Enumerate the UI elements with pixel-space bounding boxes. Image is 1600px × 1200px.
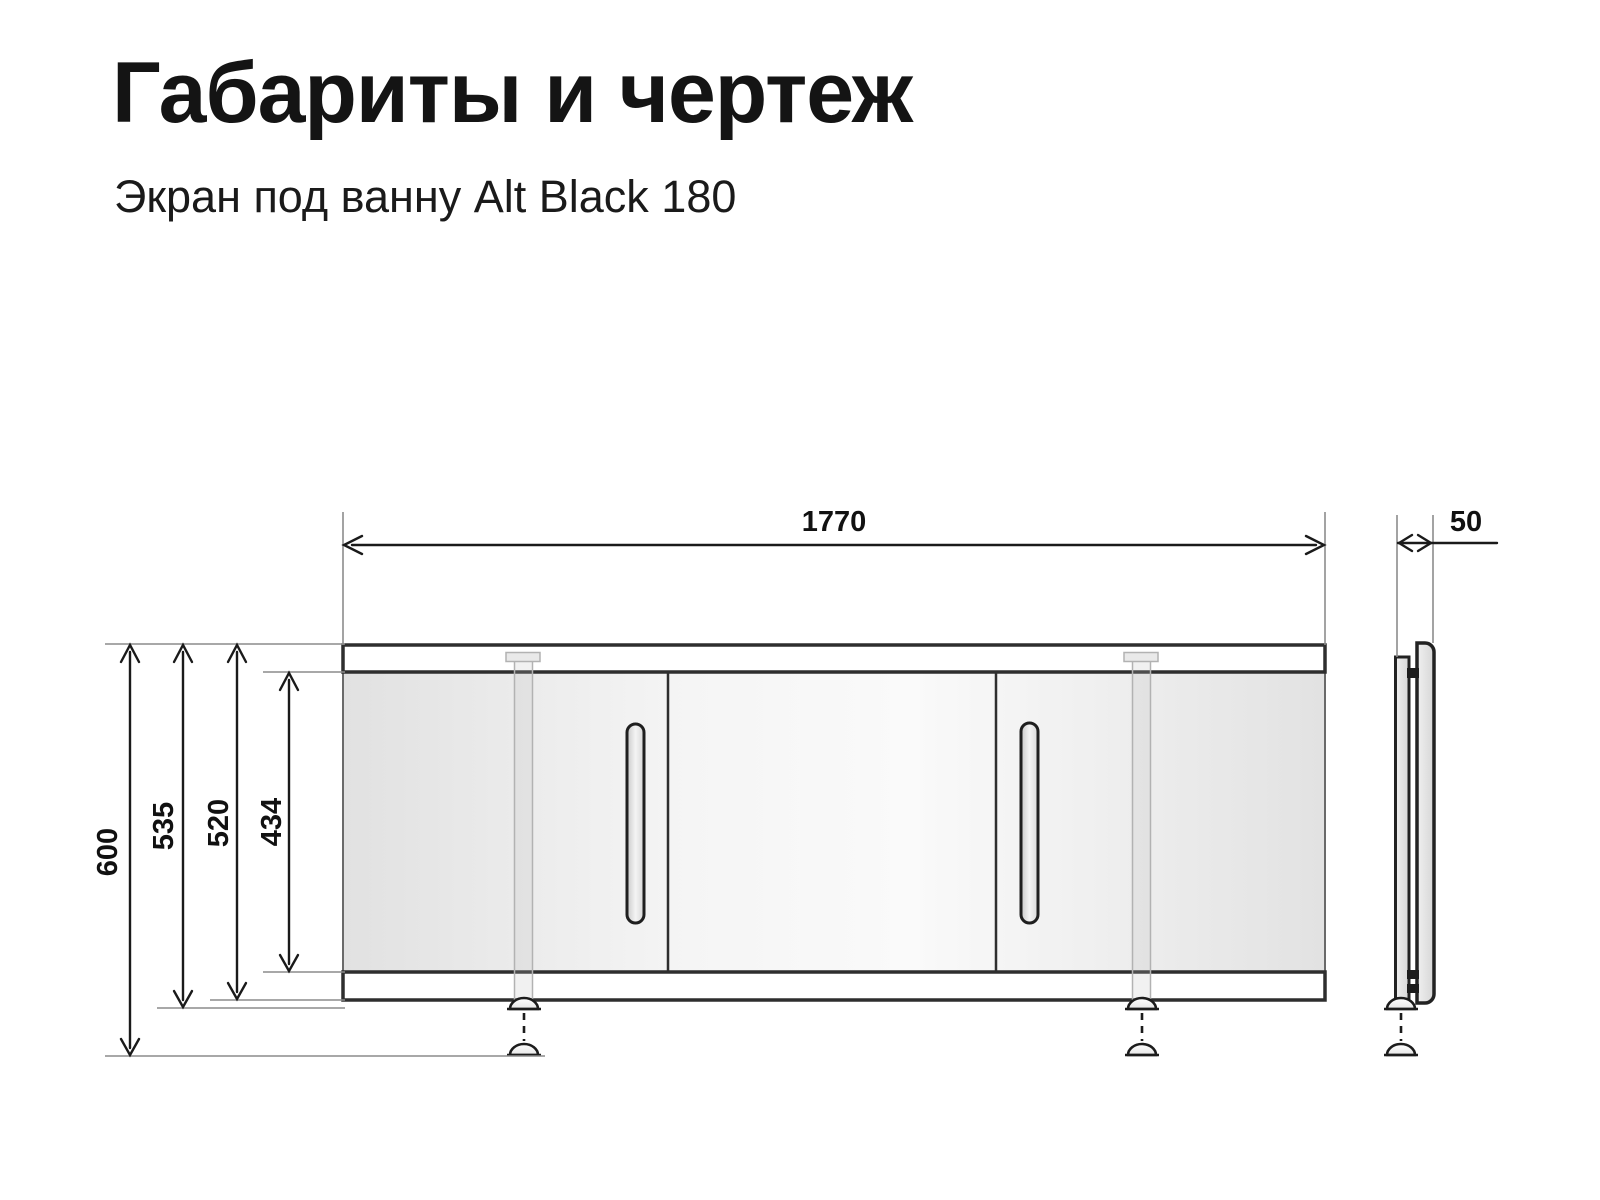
technical-drawing: 1770 50 600 535 520 <box>0 0 1600 1200</box>
dim-depth: 50 <box>1398 506 1497 551</box>
door-handle-left <box>627 724 644 923</box>
dim-height-total: 600 <box>92 645 139 1055</box>
adjustable-foot-right <box>1125 998 1159 1055</box>
leg-bracket-right <box>1124 653 1158 662</box>
dim-width-label: 1770 <box>802 506 867 538</box>
product-drawing-page: Габариты и чертеж Экран под ванну Alt Bl… <box>0 0 1600 1200</box>
side-bracket-top <box>1407 668 1419 678</box>
dim-height-total-label: 600 <box>92 828 124 876</box>
bath-screen-side-view <box>1384 643 1434 1055</box>
side-frame-rail <box>1417 643 1434 1003</box>
side-bracket-bottom-upper <box>1407 970 1419 979</box>
dim-height-with-feet-label: 535 <box>148 802 180 850</box>
bottom-rail <box>343 972 1325 1000</box>
adjustable-foot-left <box>507 998 541 1055</box>
screen-body-panel <box>343 672 1325 972</box>
dim-height-panel: 520 <box>203 645 246 999</box>
dim-height-door: 434 <box>256 673 298 971</box>
dim-height-panel-label: 520 <box>203 799 235 847</box>
bath-screen-front-view <box>343 645 1325 1055</box>
side-panel-face <box>1396 657 1410 1003</box>
top-rail <box>343 645 1325 672</box>
door-handle-right <box>1021 723 1038 923</box>
side-bracket-bottom-lower <box>1407 984 1419 993</box>
dim-depth-label: 50 <box>1450 506 1482 538</box>
dim-height-door-label: 434 <box>256 798 288 846</box>
dim-width: 1770 <box>344 506 1324 554</box>
dim-height-with-feet: 535 <box>148 645 192 1007</box>
leg-bracket-left <box>506 653 540 662</box>
adjustable-foot-side <box>1384 998 1418 1055</box>
